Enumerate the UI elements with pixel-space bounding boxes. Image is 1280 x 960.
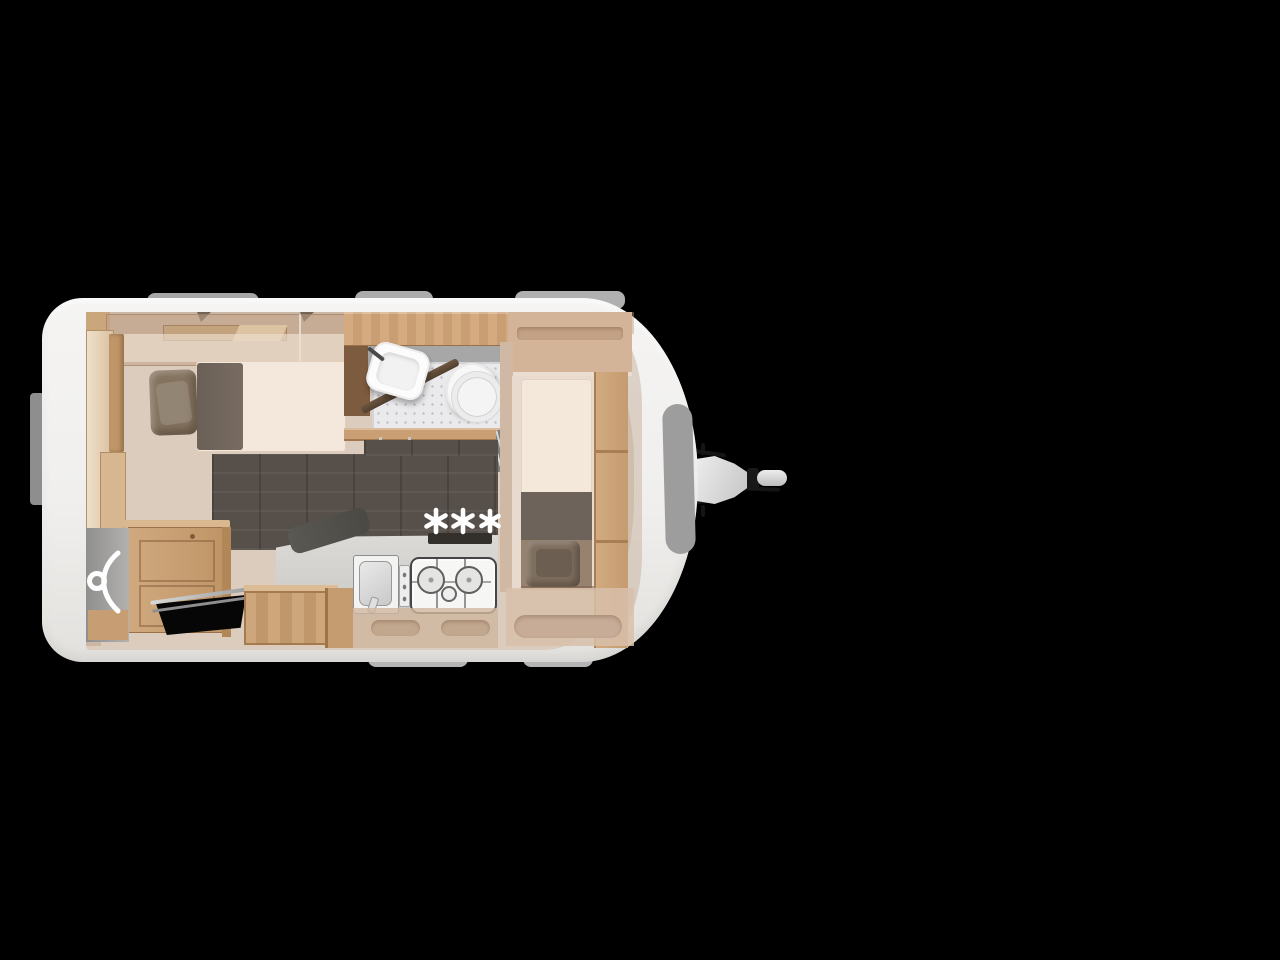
entry-step-drawer — [244, 591, 338, 645]
rear-bed-pillow-fold — [155, 380, 193, 426]
cabinet-handle-cutout — [514, 615, 622, 638]
hob-control-knobs — [399, 565, 410, 607]
hitch-coupling-head — [757, 470, 787, 486]
bench-knob — [190, 534, 195, 539]
overhead-cabinet-front — [508, 312, 632, 376]
front-bed-pillow-small — [536, 549, 572, 577]
drawbar-frame-rod — [701, 443, 705, 455]
cabinet-handle-cutout — [371, 620, 420, 636]
caravan-floorplan-scene: *** — [0, 0, 1280, 960]
toilet-seat — [452, 372, 502, 422]
clothes-hanger-icon — [84, 548, 130, 616]
drawbar-frame-rod — [701, 505, 705, 517]
rear-bed-blanket — [197, 363, 243, 450]
bed-headboard-wall — [113, 334, 345, 362]
hob-burner-small — [441, 586, 457, 602]
three-stars-text: *** — [0, 0, 1, 1]
shelf-edge — [596, 450, 628, 453]
front-window — [662, 404, 696, 555]
rear-cabinet — [100, 452, 126, 532]
dark-wood-floor — [364, 440, 498, 456]
front-bed-blanket — [521, 492, 592, 542]
shelf-edge — [596, 540, 628, 543]
hob-burner — [455, 566, 483, 594]
overhead-cabinet-groove — [517, 327, 623, 340]
bench-panel — [139, 540, 215, 582]
hitch-cover — [697, 456, 749, 504]
kitchen-partition-wall — [325, 588, 353, 648]
front-bed-mattress — [521, 379, 592, 496]
three-stars-annotation — [424, 506, 502, 536]
cabinet-handle-cutout — [441, 620, 490, 636]
bathroom-overhead-cabinet — [344, 312, 510, 348]
wood-pillar — [109, 334, 124, 452]
